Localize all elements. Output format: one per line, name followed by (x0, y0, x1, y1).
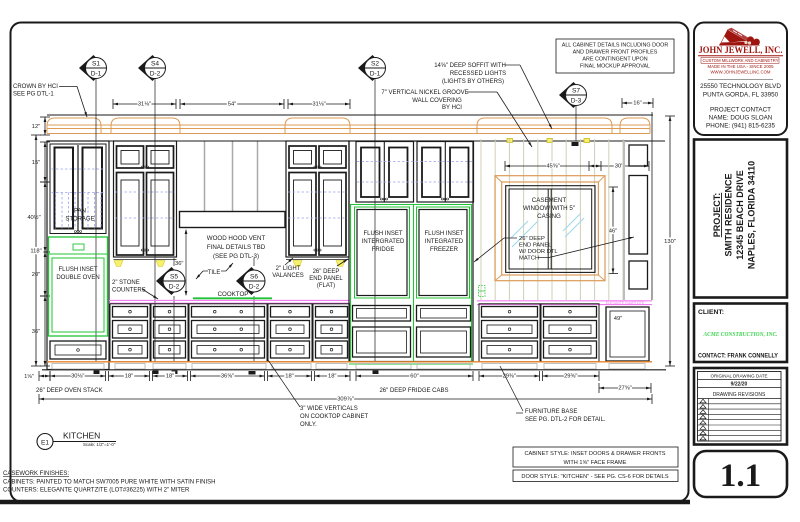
svg-text:ELEGANTE QUARTZITE: ELEGANTE QUARTZITE (606, 301, 645, 305)
svg-text:60": 60" (410, 374, 419, 380)
svg-text:CROWN BY HCI: CROWN BY HCI (13, 84, 58, 90)
svg-text:3" WIDE VERTICALS: 3" WIDE VERTICALS (300, 406, 358, 412)
svg-text:FURNITURE BASE: FURNITURE BASE (525, 409, 577, 415)
svg-text:118": 118" (30, 249, 41, 255)
svg-text:D-2: D-2 (150, 70, 161, 77)
svg-text:JOHN JEWELL, INC.: JOHN JEWELL, INC. (699, 45, 783, 55)
svg-text:DRAWING REVISIONS: DRAWING REVISIONS (713, 392, 766, 398)
svg-text:RECESSED LIGHTS: RECESSED LIGHTS (450, 71, 506, 77)
svg-text:D-3: D-3 (571, 97, 582, 104)
svg-text:26" DEEP: 26" DEEP (313, 269, 340, 275)
svg-text:49": 49" (614, 316, 623, 322)
svg-text:S7: S7 (572, 87, 580, 94)
svg-text:FRIDGE: FRIDGE (372, 247, 395, 253)
svg-text:CABINET STYLE: INSET DOORS & D: CABINET STYLE: INSET DOORS & DRAWER FRON… (524, 451, 665, 457)
svg-text:DOUBLE OVEN: DOUBLE OVEN (56, 275, 99, 281)
svg-text:ORIGINAL DRAWING DATE: ORIGINAL DRAWING DATE (710, 374, 767, 379)
svg-text:COOKTOP: COOKTOP (218, 291, 249, 298)
svg-text:1⅝": 1⅝" (24, 374, 33, 380)
svg-text:FREEZER: FREEZER (430, 247, 459, 253)
svg-text:36⅝": 36⅝" (221, 374, 234, 380)
svg-text:2" LIGHT: 2" LIGHT (276, 266, 301, 272)
svg-text:PROJECT CONTACT: PROJECT CONTACT (710, 107, 771, 114)
svg-text:46": 46" (609, 228, 618, 234)
svg-text:SEE PG DTL-1: SEE PG DTL-1 (13, 92, 54, 98)
svg-text:54": 54" (228, 102, 237, 108)
svg-text:END PANEL: END PANEL (309, 276, 343, 282)
svg-text:Scale: 1/2"=1'-0": Scale: 1/2"=1'-0" (83, 442, 116, 447)
svg-text:D-1: D-1 (91, 70, 102, 77)
svg-text:D-2: D-2 (169, 283, 180, 290)
svg-text:45⅝": 45⅝" (546, 164, 559, 170)
svg-text:(LIGHTS BY OTHERS): (LIGHTS BY OTHERS) (442, 79, 504, 85)
svg-text:26" DEEP FRIDGE CABS: 26" DEEP FRIDGE CABS (379, 388, 448, 394)
svg-text:BY HCI: BY HCI (442, 105, 462, 111)
svg-text:SEE PG. DTL-2 FOR DETAIL.: SEE PG. DTL-2 FOR DETAIL. (525, 417, 606, 423)
svg-text:ACME CONSTRUCTION, INC.: ACME CONSTRUCTION, INC. (703, 331, 778, 338)
svg-text:D-1: D-1 (370, 70, 381, 77)
svg-text:(SEE PG DTL-3): (SEE PG DTL-3) (213, 253, 259, 260)
svg-text:NAME: DOUG SLOAN: NAME: DOUG SLOAN (709, 115, 773, 122)
svg-text:STORAGE: STORAGE (65, 217, 94, 223)
svg-text:27⅝": 27⅝" (618, 386, 631, 392)
svg-text:31⅛": 31⅛" (312, 102, 325, 108)
svg-text:WITH 1⅝" FACE FRAME: WITH 1⅝" FACE FRAME (564, 460, 627, 466)
svg-text:30": 30" (615, 164, 624, 170)
svg-text:PROJECT:: PROJECT: (712, 193, 722, 238)
svg-text:NAPLES, FLORIDA 34110: NAPLES, FLORIDA 34110 (747, 161, 757, 269)
svg-text:CABINETS: PAINTED TO MATCH SW7: CABINETS: PAINTED TO MATCH SW7005 PURE W… (3, 480, 215, 486)
svg-text:S2: S2 (371, 60, 379, 67)
svg-text:WINDOW WITH 5": WINDOW WITH 5" (523, 205, 575, 212)
svg-text:130": 130" (664, 239, 676, 245)
svg-text:COUNTERS: ELEGANTE QUARTZITE (: COUNTERS: ELEGANTE QUARTZITE (LOT#36225)… (3, 488, 190, 494)
svg-text:2" STONE: 2" STONE (112, 280, 140, 286)
svg-text:AND DRAWER FRONT PROFILES: AND DRAWER FRONT PROFILES (573, 50, 658, 56)
svg-text:FLUSH INSET: FLUSH INSET (363, 231, 402, 237)
svg-text:12": 12" (32, 124, 41, 130)
svg-text:S1: S1 (92, 60, 100, 67)
svg-text:1.1: 1.1 (720, 458, 761, 494)
svg-text:COUNTERS: COUNTERS (112, 288, 146, 294)
svg-text:VALANCES: VALANCES (272, 273, 304, 279)
svg-text:INTERGRATED: INTERGRATED (362, 239, 405, 245)
svg-text:309⅞": 309⅞" (337, 397, 354, 403)
svg-text:CUSTOM MILLWORK AND CABINETRY: CUSTOM MILLWORK AND CABINETRY (703, 58, 779, 63)
svg-text:PHONE: (941) 815-6235: PHONE: (941) 815-6235 (706, 123, 775, 130)
svg-text:PAN: PAN (74, 209, 86, 215)
svg-text:18": 18" (125, 374, 134, 380)
svg-text:ALL CABINET DETAILS INCLUDING: ALL CABINET DETAILS INCLUDING DOOR (562, 43, 669, 49)
svg-text:W/ DOOR DTL: W/ DOOR DTL (519, 249, 558, 255)
svg-text:ARE CONTINGENT UPON: ARE CONTINGENT UPON (582, 57, 647, 63)
svg-text:S5: S5 (170, 273, 178, 280)
svg-text:WWW.JOHNJEWELLINC.COM: WWW.JOHNJEWELLINC.COM (711, 69, 771, 74)
svg-text:FINAL MOCKUP APPROVAL: FINAL MOCKUP APPROVAL (580, 64, 650, 70)
svg-text:36": 36" (175, 261, 184, 267)
svg-text:31⅛": 31⅛" (138, 102, 151, 108)
svg-text:DOOR STYLE: "KITCHEN" - SEE PG: DOOR STYLE: "KITCHEN" - SEE PG. CS-6 FOR… (521, 474, 668, 480)
svg-text:CASEWORK FINISHES:: CASEWORK FINISHES: (3, 471, 69, 477)
svg-text:TILE: TILE (208, 270, 221, 276)
svg-text:CASEMENT: CASEMENT (532, 197, 567, 204)
svg-text:MADE IN THE USA - SINCE 2005: MADE IN THE USA - SINCE 2005 (708, 64, 774, 69)
svg-text:40½": 40½" (27, 214, 40, 221)
svg-text:MATCH: MATCH (519, 256, 539, 262)
svg-text:FINAL DETAILS TBD: FINAL DETAILS TBD (207, 244, 266, 251)
svg-text:KITCHEN: KITCHEN (63, 431, 100, 441)
svg-text:14⅝" DEEP SOFFIT WITH: 14⅝" DEEP SOFFIT WITH (434, 63, 506, 69)
svg-text:FLUSH INSET: FLUSH INSET (58, 267, 97, 273)
svg-text:7" VERTICAL NICKEL GROOVE: 7" VERTICAL NICKEL GROOVE (381, 90, 468, 96)
svg-text:18": 18" (285, 374, 294, 380)
svg-text:D-2: D-2 (249, 283, 260, 290)
svg-text:SMITH RESIDENCE: SMITH RESIDENCE (724, 173, 734, 256)
svg-text:CONTACT: FRANK CONNELLY: CONTACT: FRANK CONNELLY (698, 353, 778, 360)
svg-text:29⅜": 29⅜" (564, 374, 577, 380)
svg-text:26" DEEP: 26" DEEP (519, 236, 545, 242)
svg-text:CLIENT:: CLIENT: (698, 309, 724, 316)
svg-text:25550 TECHNOLOGY BLVD: 25550 TECHNOLOGY BLVD (700, 83, 781, 90)
svg-text:12345 BEACH DRIVE: 12345 BEACH DRIVE (735, 170, 745, 260)
svg-text:ON COOKTOP CABINET: ON COOKTOP CABINET (300, 414, 368, 420)
svg-text:END PANEL: END PANEL (519, 243, 552, 249)
svg-text:WOOD HOOD VENT: WOOD HOOD VENT (207, 235, 266, 242)
svg-text:INTEGRATED: INTEGRATED (425, 239, 464, 245)
svg-text:18": 18" (166, 374, 175, 380)
svg-text:WALL COVERING: WALL COVERING (412, 98, 462, 104)
svg-text:S4: S4 (151, 60, 159, 67)
svg-text:CASING: CASING (537, 213, 561, 220)
svg-text:26" DEEP OVEN STACK: 26" DEEP OVEN STACK (36, 388, 103, 394)
svg-text:S6: S6 (250, 273, 258, 280)
svg-text:ONLY.: ONLY. (300, 422, 317, 428)
svg-text:18": 18" (328, 374, 337, 380)
svg-text:E1: E1 (41, 439, 49, 446)
svg-text:30⅛": 30⅛" (71, 374, 84, 380)
svg-text:9/22/20: 9/22/20 (731, 382, 748, 388)
svg-text:FLUSH INSET: FLUSH INSET (424, 231, 463, 237)
svg-text:(FLAT): (FLAT) (317, 283, 335, 289)
svg-text:16": 16" (633, 101, 642, 107)
svg-text:PUNTA GORDA, FL 33950: PUNTA GORDA, FL 33950 (703, 92, 779, 99)
